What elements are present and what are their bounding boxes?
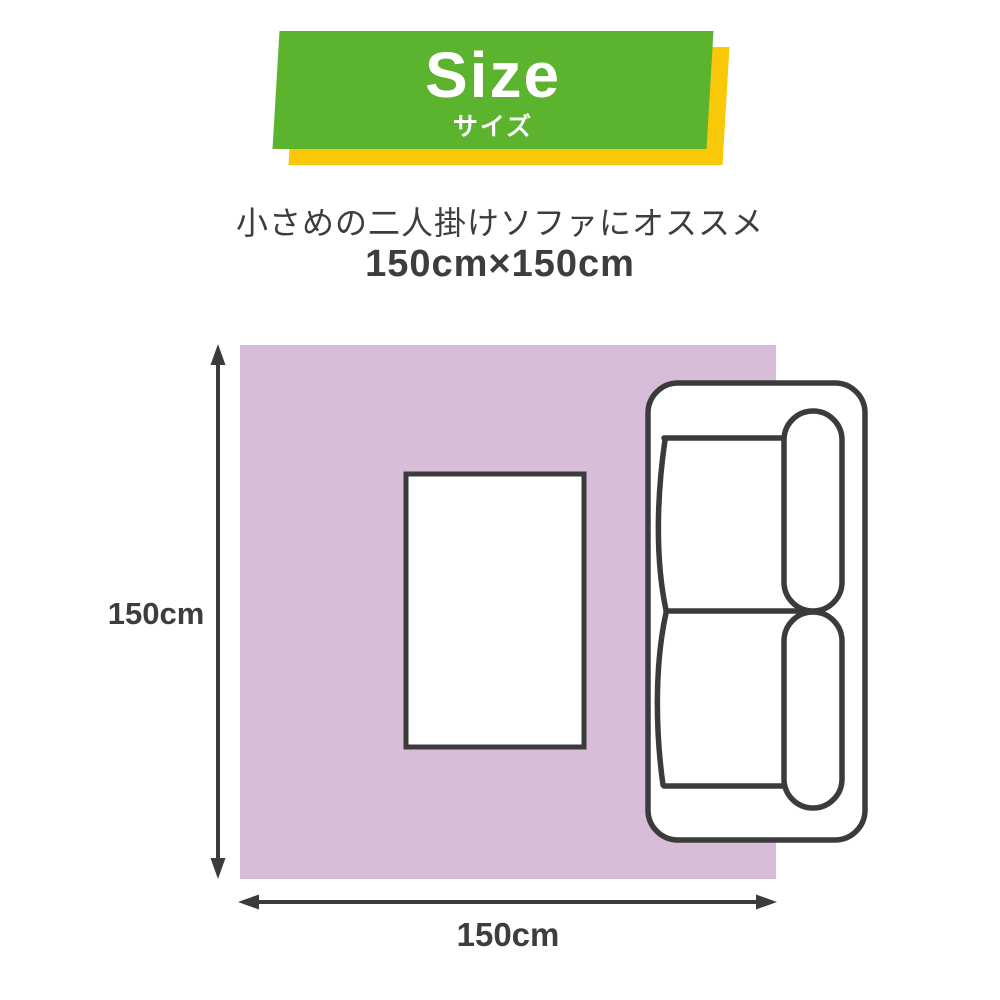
rug-size-diagram [0,0,1000,1000]
height-arrowhead-bottom [211,858,226,879]
width-arrowhead-right [756,895,777,910]
width-dimension-label: 150cm [408,916,608,954]
sofa-back-cushion-2 [784,612,842,808]
sofa-icon [648,383,865,840]
width-arrow [238,895,777,910]
width-arrowhead-left [238,895,259,910]
table-icon [406,474,584,747]
height-dimension-label: 150cm [96,596,216,632]
sofa-back-cushion-1 [784,411,842,611]
height-arrowhead-top [211,344,226,365]
